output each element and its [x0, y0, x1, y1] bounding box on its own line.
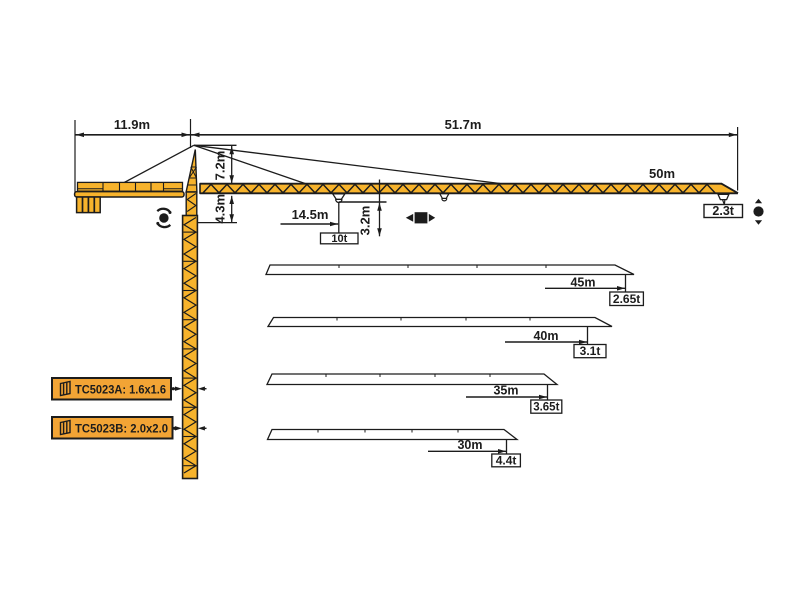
svg-text:35m: 35m — [493, 384, 518, 398]
svg-text:51.7m: 51.7m — [445, 117, 482, 132]
svg-text:4.4t: 4.4t — [496, 453, 517, 467]
svg-text:4.3m: 4.3m — [213, 194, 228, 224]
svg-text:TC5023A: 1.6x1.6: TC5023A: 1.6x1.6 — [75, 383, 167, 396]
svg-text:TC5023B: 2.0x2.0: TC5023B: 2.0x2.0 — [75, 422, 168, 435]
svg-text:3.65t: 3.65t — [533, 402, 559, 414]
svg-text:2.65t: 2.65t — [613, 292, 640, 306]
svg-text:2.3t: 2.3t — [712, 204, 734, 218]
svg-text:11.9m: 11.9m — [114, 117, 150, 132]
svg-text:30m: 30m — [457, 438, 482, 452]
svg-text:7.2m: 7.2m — [213, 151, 228, 181]
svg-text:3.1t: 3.1t — [580, 344, 601, 358]
svg-text:10t: 10t — [331, 233, 347, 245]
svg-text:40m: 40m — [533, 329, 558, 343]
svg-text:45m: 45m — [570, 276, 595, 290]
svg-text:3.2m: 3.2m — [358, 206, 373, 236]
svg-text:14.5m: 14.5m — [292, 207, 329, 222]
svg-text:50m: 50m — [649, 166, 675, 181]
